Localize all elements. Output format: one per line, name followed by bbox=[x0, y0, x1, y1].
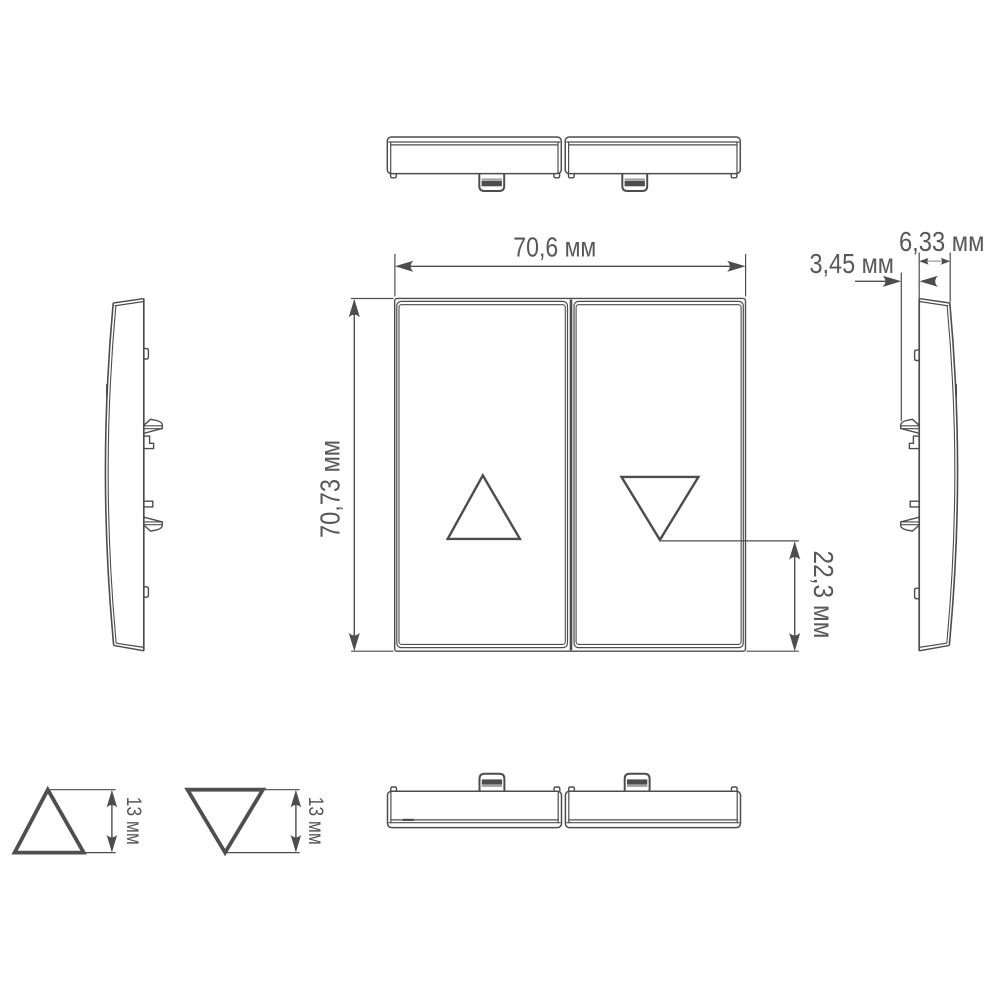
svg-text:3,45 мм: 3,45 мм bbox=[809, 248, 894, 279]
svg-text:70,73 мм: 70,73 мм bbox=[315, 440, 346, 538]
svg-text:13 мм: 13 мм bbox=[304, 797, 327, 845]
svg-text:13 мм: 13 мм bbox=[122, 797, 145, 845]
svg-text:6,33 мм: 6,33 мм bbox=[899, 226, 985, 257]
svg-text:70,6 мм: 70,6 мм bbox=[513, 232, 596, 263]
svg-text:22,3 мм: 22,3 мм bbox=[808, 551, 839, 639]
